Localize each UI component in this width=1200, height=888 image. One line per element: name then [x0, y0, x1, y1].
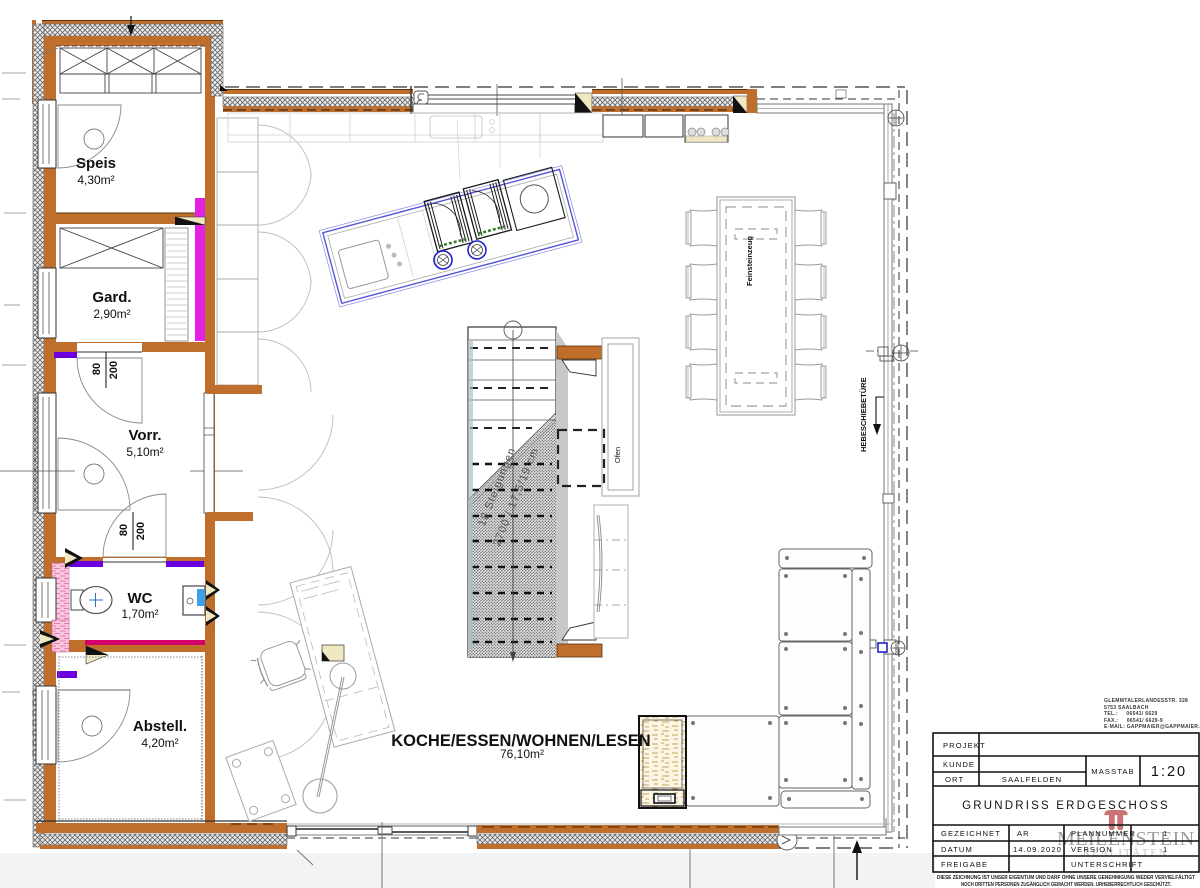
svg-text:14.09.2020: 14.09.2020 — [1013, 845, 1062, 854]
svg-text:ORT: ORT — [945, 775, 964, 784]
svg-text:GRUNDRISS ERDGESCHOSS: GRUNDRISS ERDGESCHOSS — [962, 800, 1170, 812]
svg-text:MASSTAB: MASSTAB — [1091, 767, 1134, 776]
svg-text:UNTERSCHRIFT: UNTERSCHRIFT — [1071, 860, 1143, 869]
svg-text:1:20: 1:20 — [1151, 764, 1187, 780]
svg-text:AR: AR — [1017, 829, 1030, 838]
svg-text:DATUM: DATUM — [941, 845, 973, 854]
svg-text:NOCH DRITTEN PERSONEN ZUGÄNGLI: NOCH DRITTEN PERSONEN ZUGÄNGLICH GEMACHT… — [961, 881, 1171, 888]
svg-text:SAALFELDEN: SAALFELDEN — [1002, 775, 1062, 784]
svg-text:DIESE ZEICHNUNG IST UNSER EIGE: DIESE ZEICHNUNG IST UNSER EIGENTUM UND D… — [937, 874, 1196, 881]
svg-text:KUNDE: KUNDE — [943, 760, 975, 769]
svg-text:PLANNUMMER: PLANNUMMER — [1071, 829, 1136, 838]
svg-text:1: 1 — [1163, 845, 1168, 854]
svg-text:GEZEICHNET: GEZEICHNET — [941, 829, 1001, 838]
svg-text:VERSION: VERSION — [1071, 845, 1113, 854]
svg-text:1: 1 — [1163, 829, 1168, 838]
svg-text:PROJEKT: PROJEKT — [943, 741, 986, 750]
svg-text:FREIGABE: FREIGABE — [941, 860, 988, 869]
